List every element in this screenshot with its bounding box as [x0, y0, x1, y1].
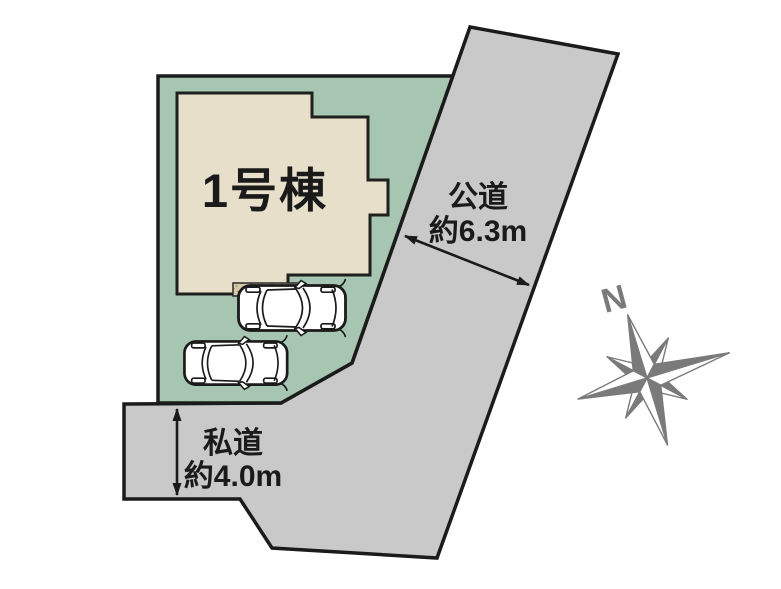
private-road-width: 約4.0m — [184, 460, 282, 493]
site-plan: 1号棟 公道 約6.3m 私道 約4.0m N — [0, 0, 781, 589]
site-plan-svg: 1号棟 公道 約6.3m 私道 約4.0m N — [0, 0, 781, 589]
public-road-width: 約6.3m — [429, 215, 527, 248]
building-label: 1号棟 — [202, 164, 328, 217]
public-road-name: 公道 — [448, 181, 508, 214]
private-road-name: 私道 — [203, 427, 263, 460]
car-icon — [184, 335, 287, 391]
car-icon — [239, 279, 346, 337]
